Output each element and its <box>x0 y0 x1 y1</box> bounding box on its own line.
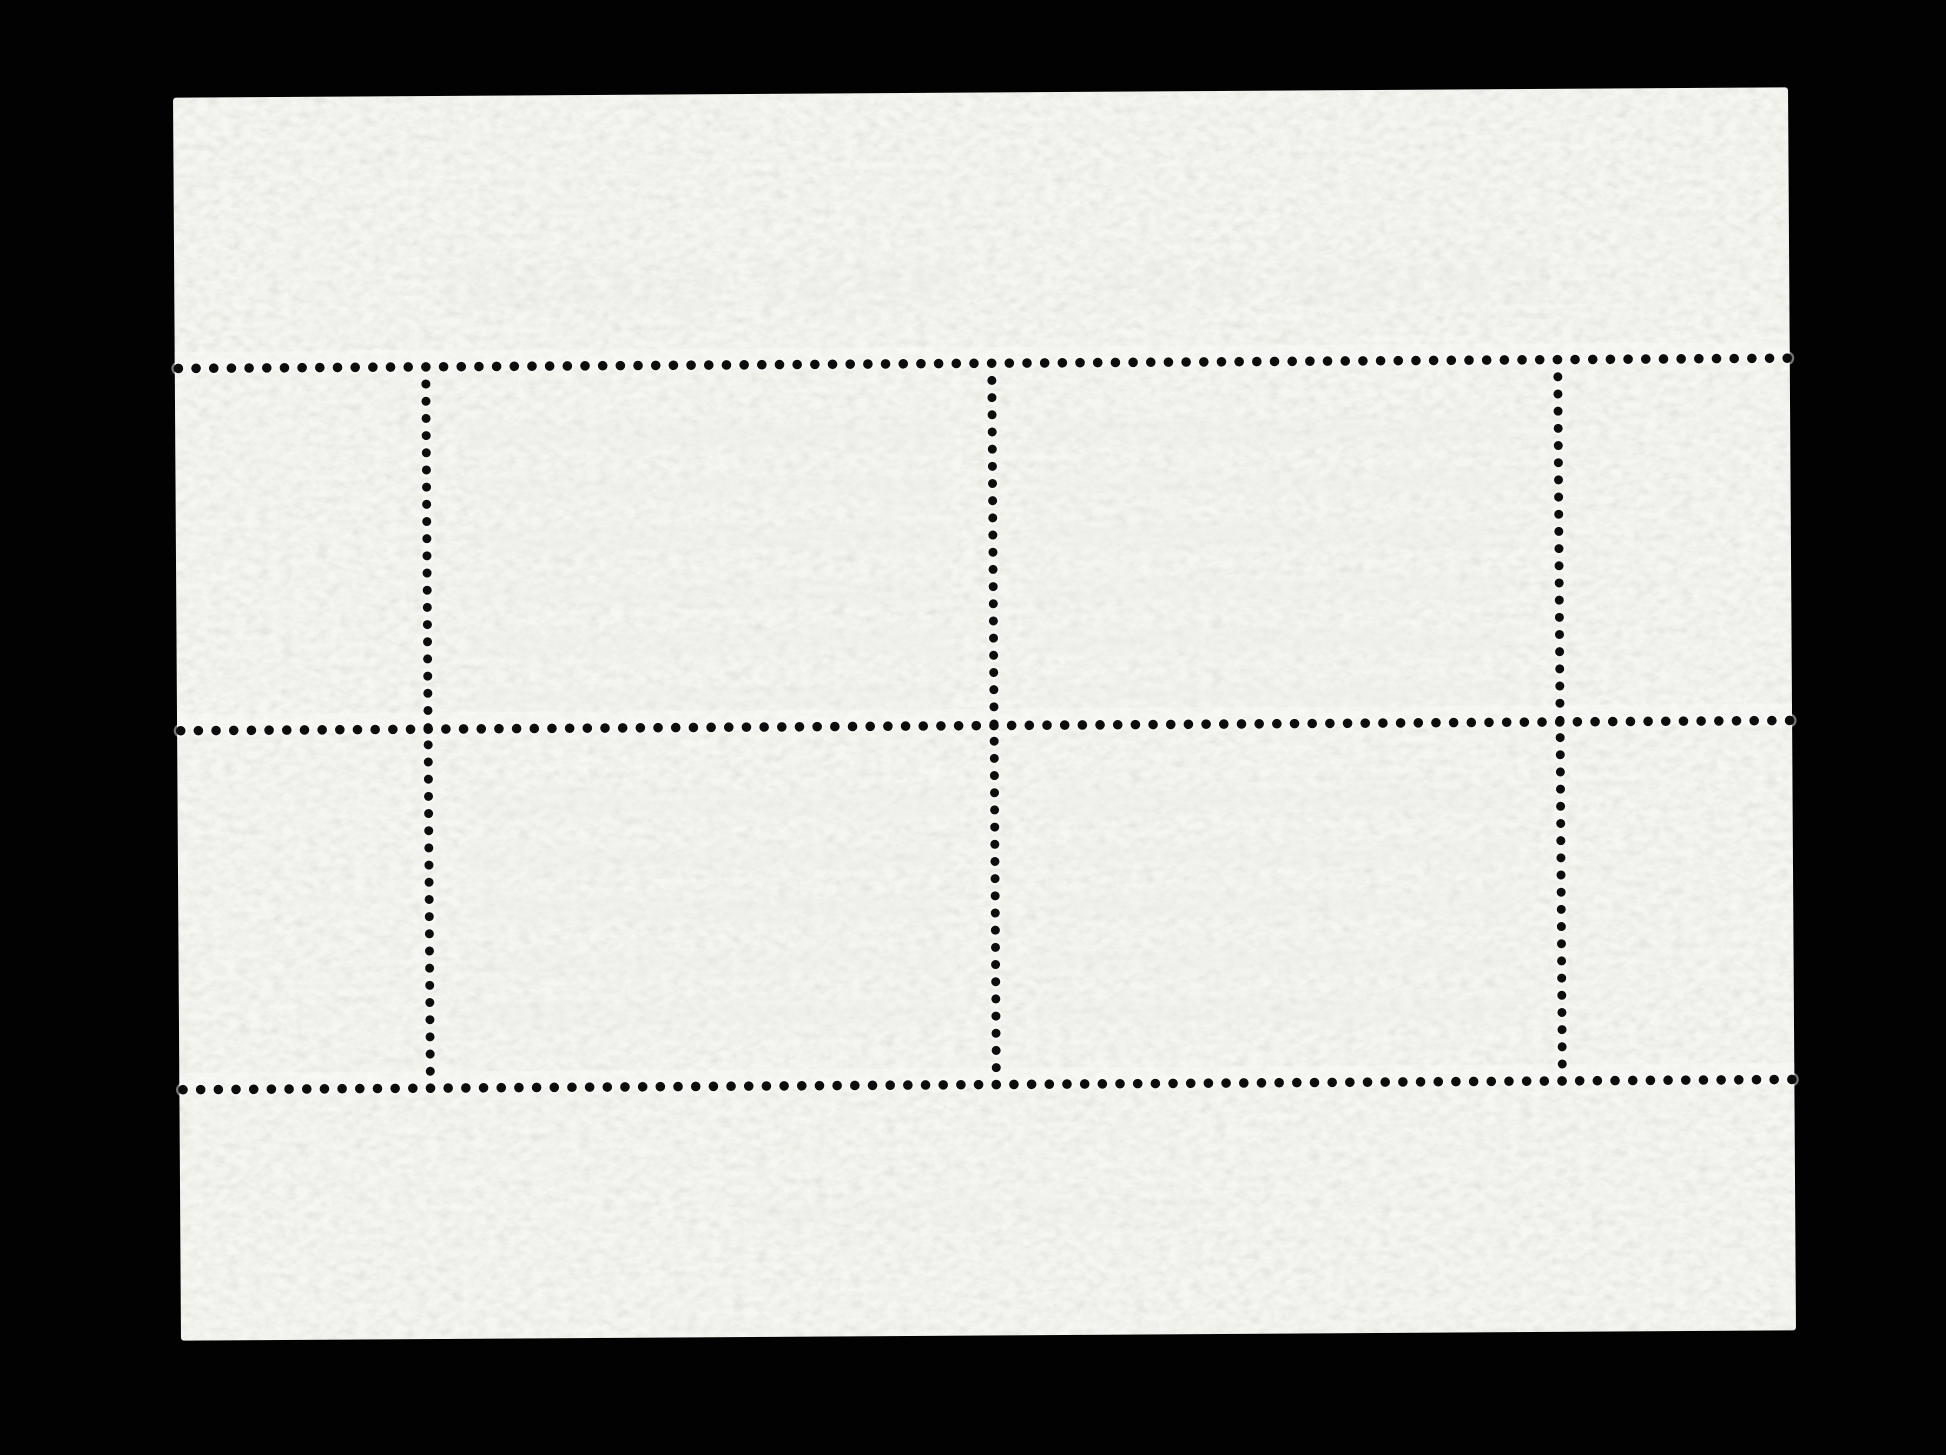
svg-text:CHIEU HOI: CHIEU HOI <box>1094 246 1541 318</box>
svg-text:NHAT QUANG: NHAT QUANG <box>429 250 955 322</box>
svg-text:BUU CHINH VIET NAM 1969: BUU CHINH VIET NAM 1969 <box>756 1194 1200 1235</box>
